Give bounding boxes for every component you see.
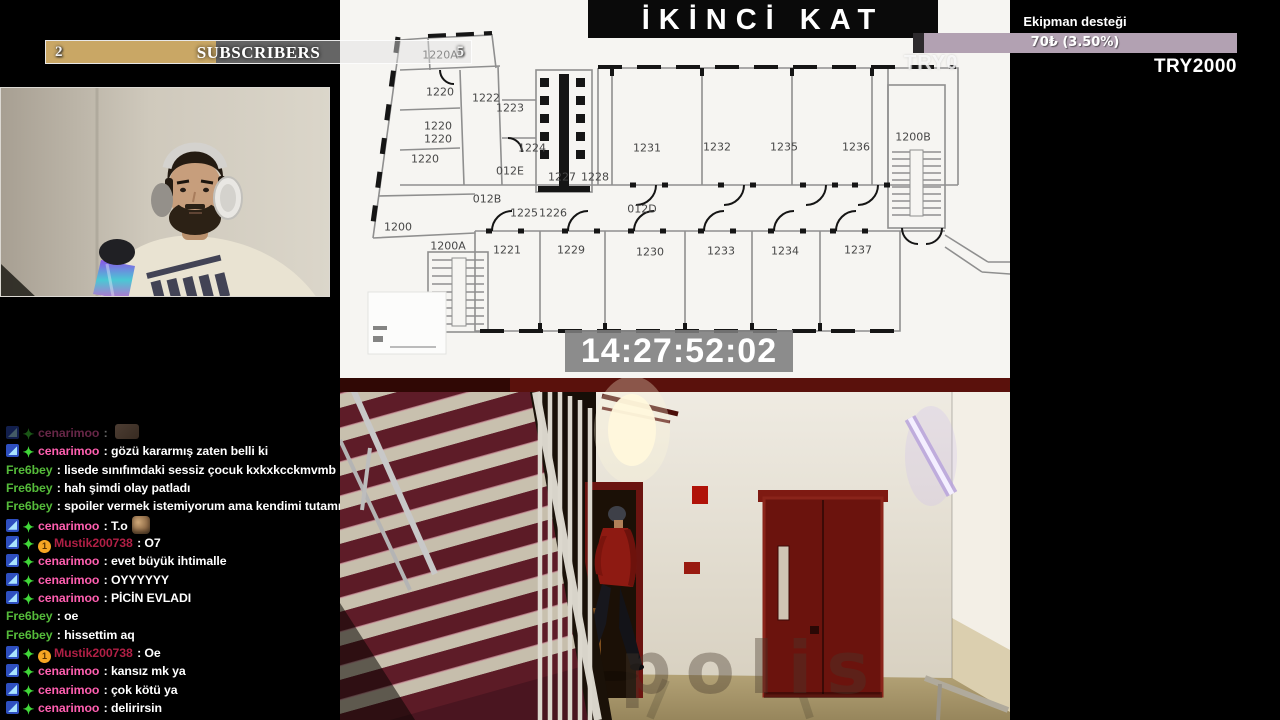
chat-separator: :	[53, 499, 64, 513]
gifter-badge-icon: 1	[38, 650, 51, 663]
chat-separator: :	[100, 444, 111, 458]
prediction-badge-icon	[6, 591, 19, 604]
prediction-badge-icon	[6, 426, 19, 439]
chat-text: OYYYYYY	[111, 573, 169, 587]
chat-username: Fre6bey	[6, 499, 52, 513]
chat-username: cenarimoo	[38, 664, 99, 678]
subscriber-goal-bar: 2 SUBSCRIBERS 5	[45, 40, 472, 64]
chat-username: Fre6bey	[6, 609, 52, 623]
chat-separator: :	[100, 683, 111, 697]
room-label: 1200	[384, 221, 412, 234]
support-goal: Ekipman desteği 70₺ (3.50%) TRY2000	[913, 14, 1237, 78]
sub-gift-badge-icon: ✦	[22, 648, 35, 661]
chat-text: hah şimdi olay patladı	[64, 481, 190, 495]
room-label: 1232	[703, 141, 731, 154]
subscriber-goal-target: 5	[457, 41, 465, 63]
chat-username: cenarimoo	[38, 683, 99, 697]
chat-text: kansız mk ya	[111, 664, 186, 678]
chat-username: cenarimoo	[38, 426, 99, 440]
floorplan-title: İKİNCİ KAT	[588, 0, 938, 38]
room-label: 012D	[627, 203, 656, 216]
room-label: 1226	[539, 207, 567, 220]
room-label: 1225	[510, 207, 538, 220]
chat-username: Fre6bey	[6, 463, 52, 477]
chat-text: Oe	[144, 646, 160, 660]
support-goal-bar: 70₺ (3.50%)	[913, 33, 1237, 53]
cctv-panel: polis	[340, 378, 1010, 720]
chat-panel: ✦cenarimoo : ✦cenarimoo : gözü kararmış …	[6, 424, 340, 720]
chat-separator: :	[134, 646, 145, 660]
chat-separator: :	[100, 519, 111, 533]
room-label: 1227	[548, 171, 576, 184]
room-label: 1200A	[430, 240, 466, 253]
prediction-badge-icon	[6, 701, 19, 714]
chat-username: cenarimoo	[38, 444, 99, 458]
prediction-badge-icon	[6, 536, 19, 549]
chat-separator: :	[53, 628, 64, 642]
room-label: 012E	[496, 165, 524, 178]
room-label: 1229	[557, 244, 585, 257]
prediction-badge-icon	[6, 683, 19, 696]
room-label: 1224	[518, 142, 546, 155]
sub-gift-badge-icon: ✦	[22, 575, 35, 588]
chat-separator: :	[100, 591, 111, 605]
cctv-timestamp: 14:27:52:02	[565, 330, 793, 372]
chat-separator: :	[134, 536, 145, 550]
chat-username: Fre6bey	[6, 628, 52, 642]
chat-username: Mustik200738	[54, 536, 133, 550]
chat-message: ✦cenarimoo : PİCİN EVLADI	[6, 589, 340, 607]
support-goal-total: TRY2000	[913, 56, 1237, 78]
chat-separator: :	[53, 481, 64, 495]
room-label: 1223	[496, 102, 524, 115]
chat-text: PİCİN EVLADI	[111, 591, 191, 605]
room-label: 1234	[771, 245, 799, 258]
sub-gift-badge-icon: ✦	[22, 666, 35, 679]
chat-message: ✦cenarimoo : T.o	[6, 516, 340, 534]
prediction-badge-icon	[6, 573, 19, 586]
chat-separator: :	[100, 426, 111, 440]
chat-separator: :	[100, 573, 111, 587]
chat-message: Fre6bey : hah şimdi olay patladı	[6, 479, 340, 497]
chat-username: cenarimoo	[38, 701, 99, 715]
sub-gift-badge-icon: ✦	[22, 556, 35, 569]
room-label: 1231	[633, 142, 661, 155]
chat-text: O7	[144, 536, 160, 550]
sub-gift-badge-icon: ✦	[22, 521, 35, 534]
chat-emote-icon	[115, 424, 139, 439]
room-label: 1237	[844, 244, 872, 257]
chat-username: Fre6bey	[6, 481, 52, 495]
sub-gift-badge-icon: ✦	[22, 446, 35, 459]
fire-alarm	[692, 486, 708, 504]
room-label: 1220	[411, 153, 439, 166]
room-label: 1228	[581, 171, 609, 184]
support-goal-value: 70₺ (3.50%)	[913, 33, 1237, 53]
room-label: 1200B	[895, 131, 931, 144]
room-label: 1220	[426, 86, 454, 99]
prediction-badge-icon	[6, 646, 19, 659]
chat-text: spoiler vermek istemiyorum ama kendimi t…	[64, 499, 340, 513]
gifter-badge-icon: 1	[38, 540, 51, 553]
chat-username: Mustik200738	[54, 646, 133, 660]
chat-message: ✦cenarimoo : gözü kararmış zaten belli k…	[6, 442, 340, 460]
chat-username: cenarimoo	[38, 573, 99, 587]
chat-message: ✦cenarimoo : kansız mk ya	[6, 662, 340, 680]
chat-message: ✦cenarimoo : evet büyük ihtimalle	[6, 552, 340, 570]
subscriber-goal-label: SUBSCRIBERS	[46, 41, 471, 63]
chat-username: cenarimoo	[38, 591, 99, 605]
chat-message: ✦cenarimoo :	[6, 424, 340, 442]
video-watermark: polis	[620, 626, 883, 710]
chat-text: delirirsin	[111, 701, 162, 715]
chat-separator: :	[53, 609, 64, 623]
chat-text: oe	[64, 609, 78, 623]
room-label: 1220	[424, 120, 452, 133]
chat-text: gözü kararmış zaten belli ki	[111, 444, 268, 458]
chat-message: ✦cenarimoo : OYYYYYY	[6, 571, 340, 589]
chat-separator: :	[100, 664, 111, 678]
stream-overlay: 2 SUBSCRIBERS 5	[0, 0, 1280, 720]
room-label: 1230	[636, 246, 664, 259]
prediction-badge-icon	[6, 444, 19, 457]
chat-text: hissettim aq	[64, 628, 135, 642]
room-label: 1220	[424, 133, 452, 146]
prediction-badge-icon	[6, 519, 19, 532]
chat-message: Fre6bey : hissettim aq	[6, 626, 340, 644]
chat-separator: :	[100, 554, 111, 568]
sub-gift-badge-icon: ✦	[22, 538, 35, 551]
room-label: 012B	[473, 193, 502, 206]
sub-gift-badge-icon: ✦	[22, 685, 35, 698]
chat-message: Fre6bey : spoiler vermek istemiyorum ama…	[6, 497, 340, 515]
chat-message: Fre6bey : lisede sınıfımdaki sessiz çocu…	[6, 461, 340, 479]
sub-gift-badge-icon: ✦	[22, 428, 35, 441]
sub-gift-badge-icon: ✦	[22, 703, 35, 716]
wall-sign	[684, 562, 700, 574]
chat-separator: :	[100, 701, 111, 715]
room-label: 1235	[770, 141, 798, 154]
room-label: 1236	[842, 141, 870, 154]
webcam-panel	[0, 87, 330, 297]
chat-username: cenarimoo	[38, 519, 99, 533]
chat-emote-icon	[132, 516, 150, 534]
chat-message: Fre6bey : oe	[6, 607, 340, 625]
chat-message: ✦1Mustik200738 : O7	[6, 534, 340, 552]
prediction-badge-icon	[6, 554, 19, 567]
chat-text: çok kötü ya	[111, 683, 178, 697]
prediction-badge-icon	[6, 664, 19, 677]
support-goal-title: Ekipman desteği	[913, 14, 1237, 29]
chat-text: lisede sınıfımdaki sessiz çocuk kxkxkcck…	[64, 463, 336, 477]
chat-username: cenarimoo	[38, 554, 99, 568]
chat-message: ✦cenarimoo : delirirsin	[6, 699, 340, 717]
room-label: 1233	[707, 245, 735, 258]
chat-message: ✦1Mustik200738 : Oe	[6, 644, 340, 662]
chat-text: T.o	[111, 519, 128, 533]
sub-gift-badge-icon: ✦	[22, 593, 35, 606]
room-label: 1221	[493, 244, 521, 257]
chat-message: ✦cenarimoo : çok kötü ya	[6, 681, 340, 699]
chat-text: evet büyük ihtimalle	[111, 554, 227, 568]
chat-separator: :	[53, 463, 64, 477]
webcam-scene	[1, 88, 330, 297]
